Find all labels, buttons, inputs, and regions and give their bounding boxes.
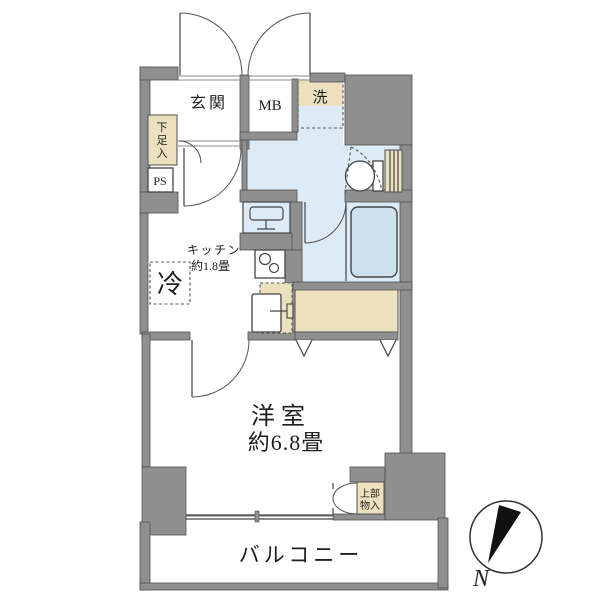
label-balcony: バルコニー [239,543,364,567]
closet [295,289,398,332]
label-fridge: 冷 [157,270,183,299]
label-mb: MB [258,98,281,114]
label-shoe-2: 足 [157,135,168,147]
stove [255,250,285,278]
label-kitchen-size: 約1.8畳 [191,258,230,273]
toilet-bowl [346,161,375,191]
label-room-name: 洋室 [251,403,311,430]
floor-plan-drawing: 玄関 MB 洗 下 足 入 PS 冷 キッチン 約1.8畳 洋室 約6.8畳 上… [0,0,600,600]
label-shoe-1: 下 [157,122,168,134]
label-compass-north: N [472,566,491,592]
floor-plan-page: 玄関 MB 洗 下 足 入 PS 冷 キッチン 約1.8畳 洋室 約6.8畳 上… [0,0,600,600]
label-upper-storage-1: 上部 [360,487,380,500]
bathtub [351,207,397,277]
label-shoe-3: 入 [157,148,168,160]
washbasin [243,202,290,233]
label-ps: PS [153,174,166,188]
label-upper-storage-2: 物入 [360,499,380,512]
compass [470,501,542,573]
label-laundry: 洗 [312,89,327,106]
faucet-icon [287,304,293,318]
label-kitchen-name: キッチン [187,243,241,257]
label-room-size: 約6.8畳 [248,430,325,455]
label-genkan: 玄関 [190,94,228,112]
